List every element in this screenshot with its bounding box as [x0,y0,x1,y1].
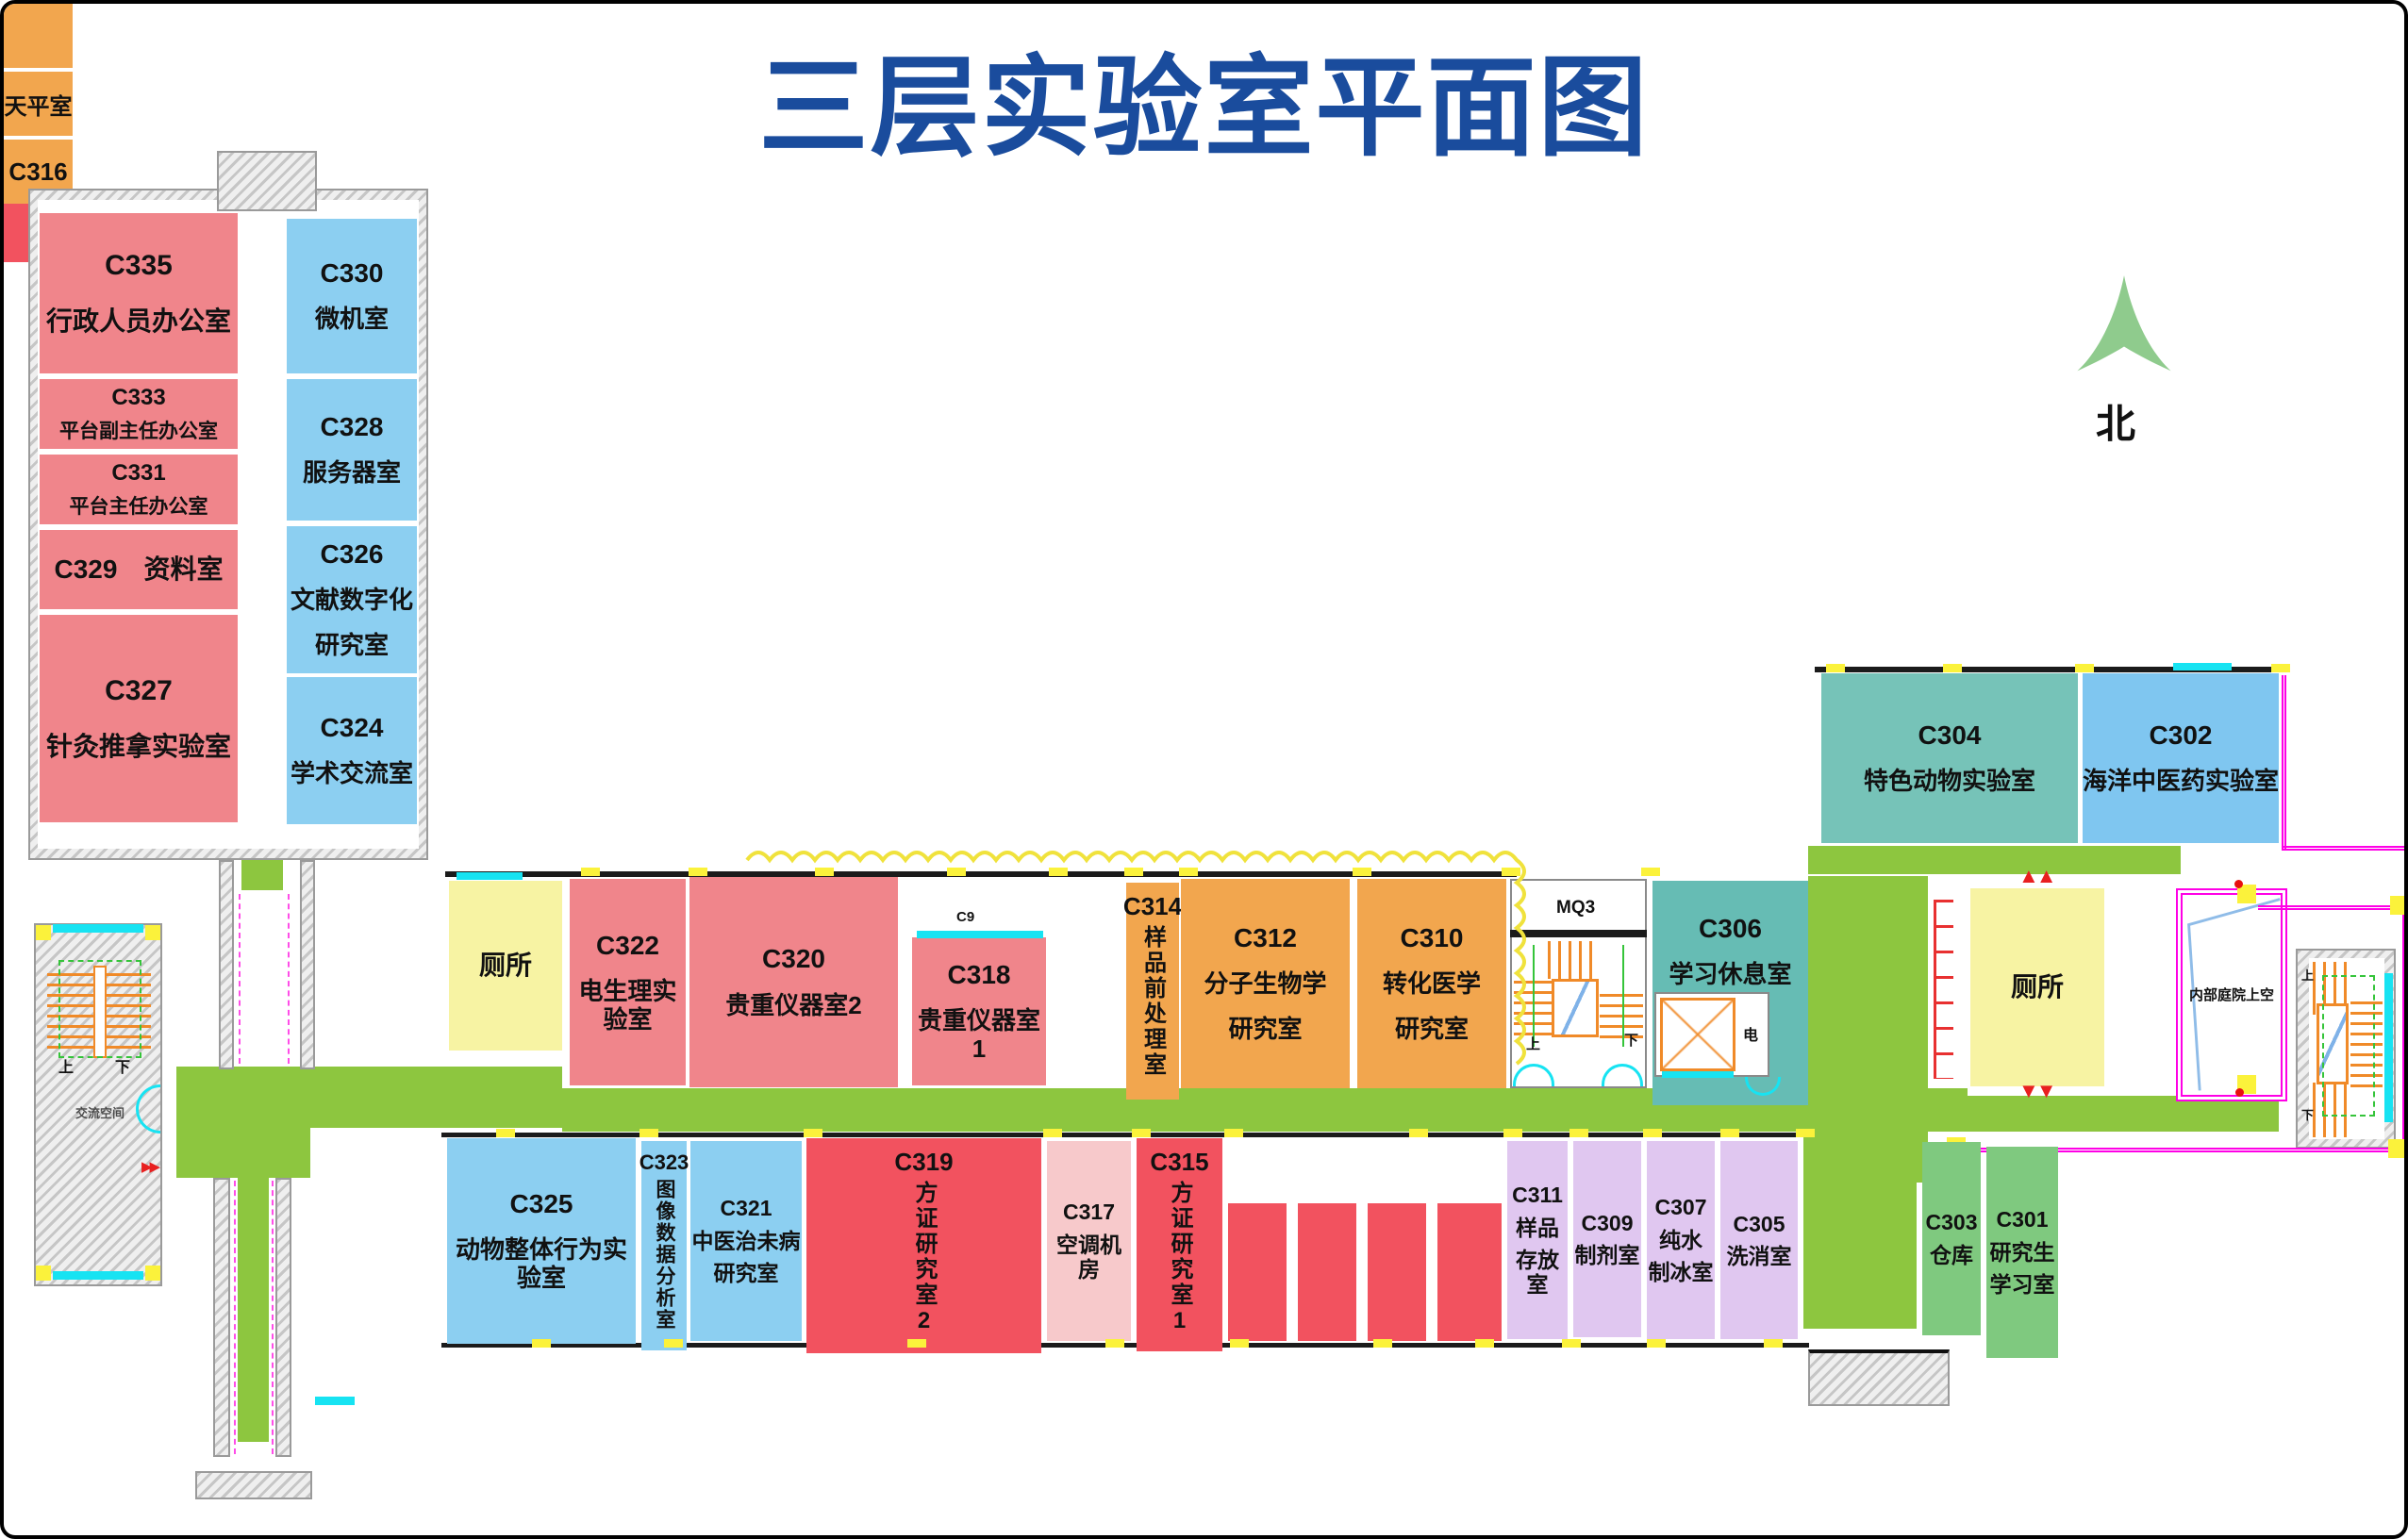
wall-line [234,1181,236,1454]
corner-mark [36,925,51,940]
corner-mark [36,1266,51,1281]
door-mark [581,868,600,876]
room-label: 研究室 [1395,1016,1469,1044]
door-mark [1105,1339,1124,1348]
room-id: 厕所 [479,951,532,981]
room-c311: C311样品存放室 [1507,1141,1568,1339]
door-mark [1647,1339,1666,1348]
electrical-room-label: 电 [1743,1022,1758,1045]
room-id: C317 [1063,1200,1115,1224]
room-toilet-right: 厕所 [1970,888,2104,1086]
room-c319: C319 方证研究室2 [806,1138,1041,1353]
site-line [2282,675,2286,851]
room-label: 制剂室 [1575,1243,1640,1267]
room-c302: C302海洋中医药实验室 [2083,673,2279,843]
room-id: C304 [1918,720,1982,751]
room-label: 贵重仪器室1 [912,1007,1046,1064]
door-mark [1179,868,1198,876]
door-mark [2075,664,2094,672]
room-c324: C324学术交流室 [287,677,417,824]
room-c315: C315 方证研究室1 [1137,1138,1222,1351]
room-id: 厕所 [2011,972,2064,1002]
room-id: C324 [321,713,384,743]
room-label: 学术交流室 [291,760,413,788]
room-c301: C301研究生学习室 [1986,1147,2058,1358]
room-c329: C329 资料室 [40,530,238,609]
door-mark [1224,1129,1243,1137]
site-line [2282,846,2407,851]
corridor-bottom-left [238,1178,269,1442]
stair-note-label: 交流空间 [62,1103,138,1121]
room-id: C318 [948,960,1011,990]
room-id: C323 [639,1150,689,1175]
room-id: C335 [105,250,173,283]
room-label: 方证研究室1 [1163,1181,1196,1336]
corridor-top-right [1808,846,2181,874]
room-c313-cell [1368,1203,1426,1341]
door-mark [664,1339,683,1348]
door-mark [1720,1129,1739,1137]
page-title: 三层实验室平面图 [759,19,1650,177]
door-mark [1475,1339,1494,1348]
room-c335: C335行政人员办公室 [40,213,238,373]
stair-rail [2322,975,2375,1117]
room-c310: C310转化医学研究室 [1357,879,1506,1088]
room-id: C333 [111,385,165,411]
room-label: 中医治未病 [692,1229,801,1253]
room-c309: C309制剂室 [1573,1141,1641,1337]
door-mark [1353,868,1371,876]
room-id: C310 [1401,923,1464,953]
room-id: C329 资料室 [55,554,224,585]
door-direction-icon: ▲▲ [2018,864,2054,888]
radiator-symbol [1934,900,1953,1079]
room-id: C325 [510,1189,573,1219]
floor-plan: 三层实验室平面图 北 上 下 交流空间 ▶▶ C335行 [0,0,2408,1539]
room-id: C302 [2150,720,2213,751]
door-mark [1049,868,1068,876]
room-c303: C303仓库 [1922,1142,1981,1335]
room-label: 学习室 [1990,1272,2055,1297]
room-id: C309 [1582,1211,1634,1235]
stair-mq3-label: MQ3 [1556,898,1595,918]
room-id: C319 [894,1148,953,1177]
wall-corridor-left-b [300,860,315,1069]
room-label: 特色动物实验室 [1864,768,2035,796]
room-label: 平台副主任办公室 [59,421,218,443]
room-id: C311 [1512,1183,1563,1207]
room-label: 仓库 [1930,1243,1973,1267]
window-strip [315,1397,355,1405]
corridor-bottom-right [1803,1132,1917,1329]
door-mark [1562,1339,1581,1348]
room-label: 电生理实验室 [570,978,686,1034]
door-mark [1943,664,1962,672]
door-mark [532,1339,551,1348]
wall-line [239,894,241,1064]
door-mark [639,1129,658,1137]
room-c323: C323 图像数据分析室 [641,1141,687,1350]
room-label: 研究室 [714,1261,779,1285]
window-strip [53,1271,143,1280]
room-toilet-left: 厕所 [449,881,562,1051]
door-mark [689,868,707,876]
north-arrow-icon [2075,273,2173,390]
room-c322: C322电生理实验室 [570,879,686,1085]
wall-base-bottom-left [195,1471,312,1499]
room-c328: C328服务器室 [287,379,417,521]
room-label: 学习休息室 [1669,961,1791,989]
wall-corridor-bottom-b [275,1178,291,1457]
door-mark [2271,664,2290,672]
room-id: C330 [321,258,384,289]
room-c330: C330微机室 [287,219,417,373]
door-mark [1043,1129,1062,1137]
elevator-icon [1660,998,1735,1071]
room-label: 洗消室 [1727,1244,1792,1268]
north-label: 北 [2058,392,2173,450]
room-label: 海洋中医药实验室 [2083,768,2279,796]
door-mark [1409,1129,1428,1137]
room-id: C303 [1926,1210,1978,1234]
room-id: C301 [1997,1207,2049,1232]
stair-landing [1552,979,1599,1037]
junction-mark [2390,896,2408,915]
marker-dot [2235,1088,2244,1097]
door-mark [1764,1339,1783,1348]
room-label: 贵重仪器室2 [725,992,861,1020]
site-line [2402,907,2407,1152]
north-compass: 北 [2075,273,2173,450]
wall-line [288,894,290,1064]
door-mark [907,1339,926,1348]
door-mark [1643,1129,1662,1137]
room-id: C320 [762,944,825,974]
stair-rail [1533,945,1535,1047]
door-mark [1796,1129,1815,1137]
door-direction-icon: ▼▼ [2018,1079,2054,1103]
room-c313-cell [1228,1203,1287,1341]
marker-dot [2234,880,2243,888]
room-id: C328 [321,412,384,442]
stair-up-label: 上 [2301,966,2314,984]
door-mark [1641,868,1660,876]
room-label: 微机室 [315,306,389,334]
stair-rail [58,960,141,1058]
room-c305: C305洗消室 [1720,1141,1798,1339]
room-id: C305 [1734,1212,1785,1236]
window-strip [1662,1071,1734,1078]
room-label: 空调机房 [1047,1233,1131,1282]
room-label: 转化医学 [1383,970,1481,999]
room-label: 样品前处理室 [1137,925,1170,1078]
corner-mark [145,925,160,940]
door-mark [947,868,966,876]
room-label: 动物整体行为实验室 [447,1236,636,1293]
room-label: 文献数字化 [291,587,413,615]
door-mark [1373,1339,1392,1348]
site-line [2258,905,2407,910]
corner-mark [145,1266,160,1281]
wall-line [272,1181,274,1454]
corridor-main-left [310,1067,562,1128]
wall-corridor-left-a [219,860,234,1069]
room-label: 分子生物学 [1204,970,1326,999]
door-direction-icon: ▶▶ [141,1158,158,1175]
room-label: 服务器室 [303,459,401,488]
room-label: 研究室 [1228,1016,1302,1044]
room-id: C314 [1123,892,1182,921]
room-label: 纯水 [1659,1228,1702,1252]
room-id: C321 [721,1196,772,1220]
room-c312: C312分子生物学研究室 [1181,879,1350,1088]
window-strip [2384,973,2393,1122]
room-label: 制冰室 [1649,1260,1714,1284]
door-mark [1826,664,1845,672]
room-c317: C317空调机房 [1047,1141,1131,1341]
door-mark [496,1129,515,1137]
room-cell-empty [4,4,73,68]
stair-down-label: 下 [2301,1105,2314,1123]
stair-up-label: 上 [58,1054,74,1077]
junction-mark [2388,1139,2407,1158]
room-label: 研究室 [315,632,389,660]
room-label: 行政人员办公室 [46,306,231,337]
window-label-c9: C9 [956,909,974,925]
door-mark [1230,1339,1249,1348]
room-c333: C333平台副主任办公室 [40,379,238,449]
door-mark [1569,1129,1588,1137]
entrance-vestibule [1808,1349,1950,1406]
room-id: C326 [321,539,384,570]
room-c320: C320贵重仪器室2 [689,877,898,1087]
door-mark [804,1129,822,1137]
room-c314: C314 样品前处理室 [1126,883,1179,1100]
room-id: C306 [1699,914,1762,944]
room-c326: C326文献数字化研究室 [287,526,417,673]
room-c313-cell [1437,1203,1502,1341]
window-strip-c9 [917,931,1043,938]
room-label: 方证研究室2 [907,1181,940,1336]
room-c304: C304特色动物实验室 [1821,673,2078,843]
door-mark [815,868,834,876]
stair-down-label: 下 [1624,1030,1638,1050]
room-id: C315 [1150,1148,1208,1177]
room-id: C312 [1234,923,1297,953]
wall-stub-top [217,151,317,211]
room-c307: C307纯水制冰室 [1647,1141,1715,1339]
door-mark [1503,1129,1522,1137]
room-balance: 天平室 [4,68,73,136]
stair-up-label: 上 [1526,1034,1540,1053]
stair-landing-wall [1510,930,1647,937]
room-c327: C327针灸推拿实验室 [40,615,238,822]
room-label: 样品 [1516,1216,1559,1240]
door-mark [1502,868,1520,876]
room-label: 平台主任办公室 [70,496,208,519]
room-label: 图像数据分析室 [650,1179,678,1331]
courtyard: 内部庭院上空 [2176,888,2287,1101]
room-id: C327 [105,675,173,708]
room-c325: C325动物整体行为实验室 [447,1138,636,1344]
wall-corridor-bottom-a [213,1178,230,1457]
stair-down-label: 下 [115,1054,130,1077]
stair-treads [1548,941,1599,979]
courtyard-label: 内部庭院上空 [2178,985,2285,1004]
room-id: C331 [111,460,165,487]
window-strip [2173,663,2232,670]
window-strip [457,872,523,880]
room-id: C307 [1655,1195,1707,1219]
room-c313-cell [1298,1203,1356,1341]
room-c318: C318贵重仪器室1 [912,937,1046,1085]
room-c321: C321中医治未病研究室 [690,1141,802,1341]
window-strip [53,924,143,933]
room-c331: C331平台主任办公室 [40,455,238,524]
corridor-junction-left [176,1067,310,1178]
door-mark [1124,868,1143,876]
room-label: 针灸推拿实验室 [46,732,231,762]
room-balance-column: 天平室 C316 [4,4,73,204]
room-label: 研究生 [1990,1240,2055,1265]
room-label: 存放室 [1507,1248,1568,1298]
door-mark [1132,1129,1151,1137]
room-id: C322 [596,931,659,961]
